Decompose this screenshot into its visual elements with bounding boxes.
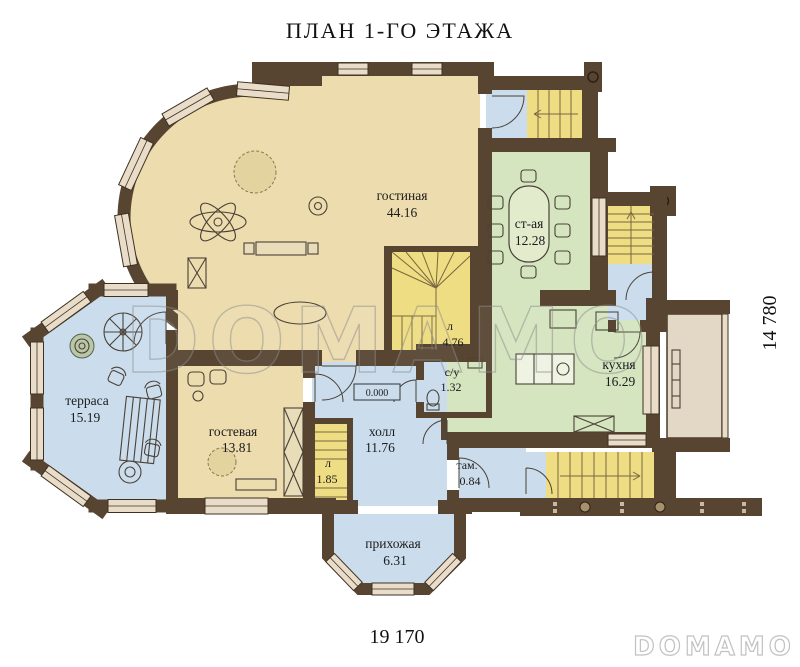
room-label-hall-name: холл [369,424,396,439]
living-console [256,242,306,255]
brand-logo: DOMAMO [633,632,795,662]
room-label-terrace-area: 15.19 [70,410,101,425]
dimension-height-label: 14 780 [759,296,781,351]
terrace-plant [70,334,94,358]
kitchen-floor-strip [447,418,492,432]
terrace-window [31,408,44,460]
terrace-window [108,500,156,513]
room-label-mainstairs-area: 4.76 [443,335,464,349]
room-label-kitchen-area: 16.29 [605,374,636,389]
room-label-dining-name: ст-ая [515,216,544,231]
room-label-living-name: гостиная [377,188,428,203]
vestibule-floor [459,448,526,498]
room-label-vestibule-name: там. [456,458,477,472]
room-label-wc-name: с/у [445,365,460,379]
small-stairs-floor [315,424,347,506]
guest-wardrobe [284,408,303,496]
watermark-text: DOMAMO [125,289,656,394]
room-label-guest-name: гостевая [209,424,258,439]
room-label-smallstairs-area: 1.85 [317,472,338,486]
balcony-rail [722,314,728,438]
room-label-entry-area: 6.31 [383,553,407,568]
room-label-mainstairs-name: л [447,319,453,333]
room-label-vestibule-area: 0.84 [460,474,481,488]
upper-landing-floor [486,90,527,138]
kitchen-south-window [608,434,646,446]
room-label-guest-area: 13.81 [222,440,252,455]
room-label-living-area: 44.16 [387,205,418,220]
exterior-landing-floor [526,452,546,498]
dimension-width-label: 19 170 [370,626,425,648]
room-label-kitchen-name: кухня [602,357,635,372]
floor-plan-drawing: 0.000 DOMAMO гостиная 44.16 ст-ая 12.28 … [0,0,800,667]
terrace-window [31,342,44,394]
room-label-wc-area: 1.32 [441,380,462,394]
room-label-smallstairs-name: л [325,456,331,470]
room-label-entry-name: прихожая [365,536,420,551]
entry-door [372,583,414,595]
guest-window [205,498,268,514]
room-label-hall-area: 11.76 [365,440,395,455]
floor-plan-page: 0.000 DOMAMO гостиная 44.16 ст-ая 12.28 … [0,0,800,667]
room-label-terrace-name: терраса [65,393,109,408]
living-window [412,63,442,75]
dining-window [592,198,606,256]
page-title: ПЛАН 1-ГО ЭТАЖА [286,18,514,43]
balcony-floor [667,314,722,438]
chimney-top [588,72,598,82]
room-label-dining-area: 12.28 [515,233,546,248]
living-window [338,63,368,75]
living-rug [234,151,276,193]
